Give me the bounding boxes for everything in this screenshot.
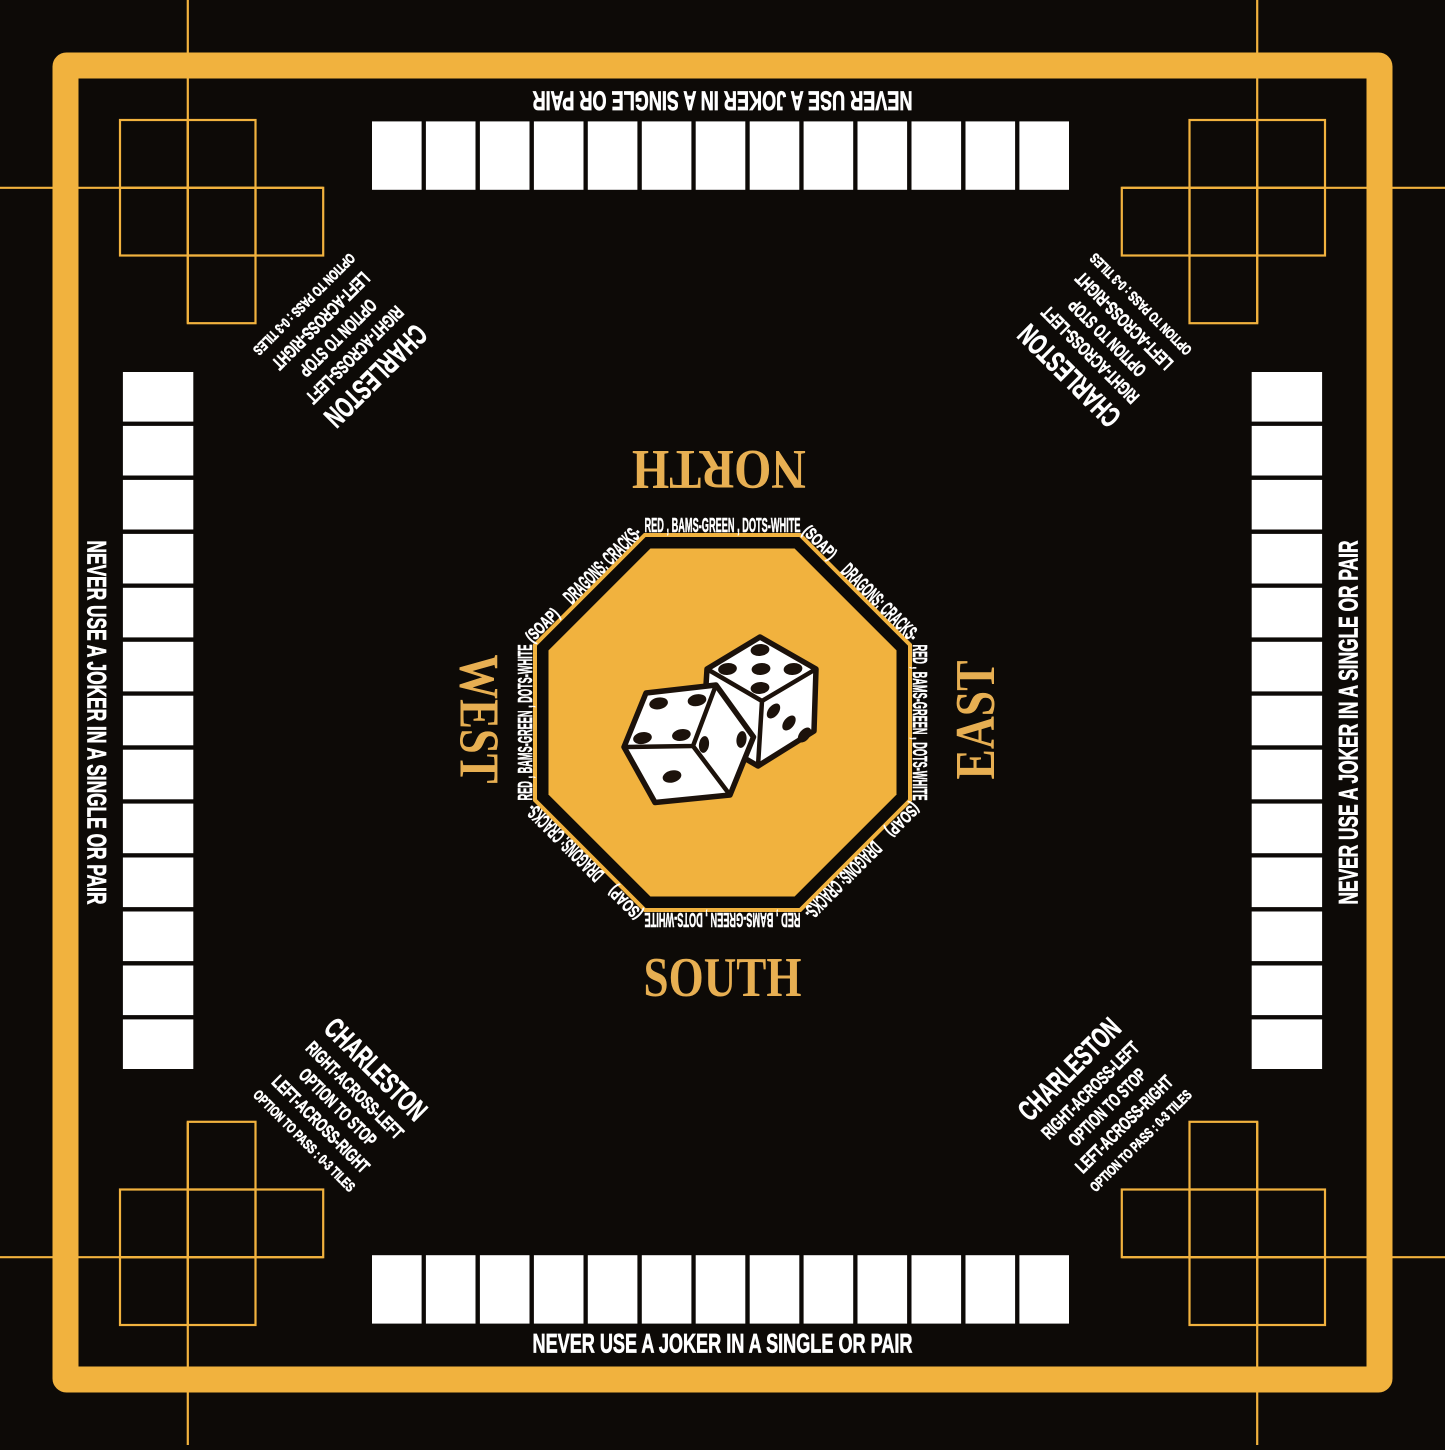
svg-text:RED , BAMS-GREEN , DOTS-WHITE: RED , BAMS-GREEN , DOTS-WHITE (514, 645, 537, 801)
svg-text:NEVER USE A JOKER IN A SINGLE: NEVER USE A JOKER IN A SINGLE OR PAIR (82, 541, 112, 905)
svg-text:NEVER USE A JOKER IN A SINGLE: NEVER USE A JOKER IN A SINGLE OR PAIR (533, 86, 913, 116)
svg-text:RED , BAMS-GREEN , DOTS-WHITE: RED , BAMS-GREEN , DOTS-WHITE (908, 645, 931, 801)
svg-text:RED , BAMS-GREEN , DOTS-WHITE: RED , BAMS-GREEN , DOTS-WHITE (645, 514, 801, 537)
svg-text:EAST: EAST (945, 661, 1007, 780)
svg-text:SOUTH: SOUTH (644, 947, 802, 1009)
svg-text:WEST: WEST (447, 655, 509, 784)
svg-text:NORTH: NORTH (632, 438, 806, 500)
svg-text:NEVER USE A JOKER IN A SINGLE: NEVER USE A JOKER IN A SINGLE OR PAIR (1333, 541, 1363, 905)
svg-text:RED , BAMS-GREEN , DOTS-WHITE: RED , BAMS-GREEN , DOTS-WHITE (645, 908, 801, 931)
svg-text:NEVER USE A JOKER IN A SINGLE: NEVER USE A JOKER IN A SINGLE OR PAIR (533, 1328, 913, 1358)
